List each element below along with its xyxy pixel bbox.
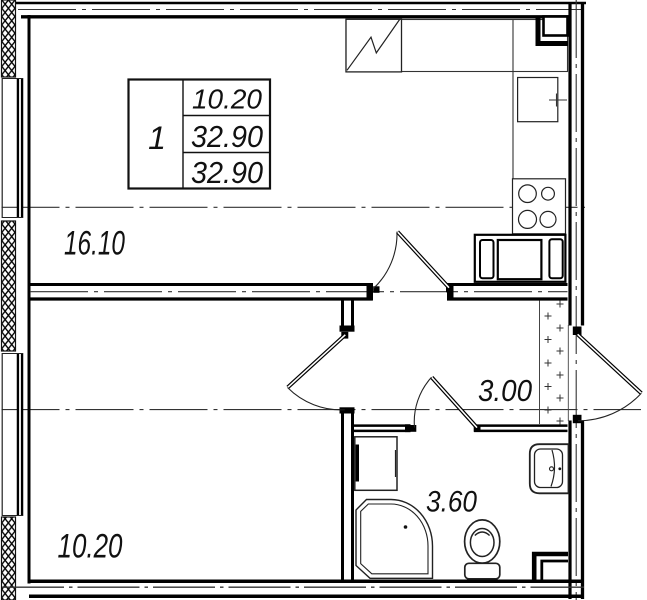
svg-text:16.10: 16.10 bbox=[64, 225, 125, 263]
svg-text:32.90: 32.90 bbox=[191, 155, 263, 190]
svg-text:32.90: 32.90 bbox=[191, 119, 263, 154]
svg-text:3.00: 3.00 bbox=[478, 373, 532, 408]
svg-text:1: 1 bbox=[148, 120, 166, 156]
svg-text:10.20: 10.20 bbox=[58, 528, 123, 566]
svg-text:10.20: 10.20 bbox=[192, 84, 262, 115]
svg-text:3.60: 3.60 bbox=[426, 486, 477, 519]
